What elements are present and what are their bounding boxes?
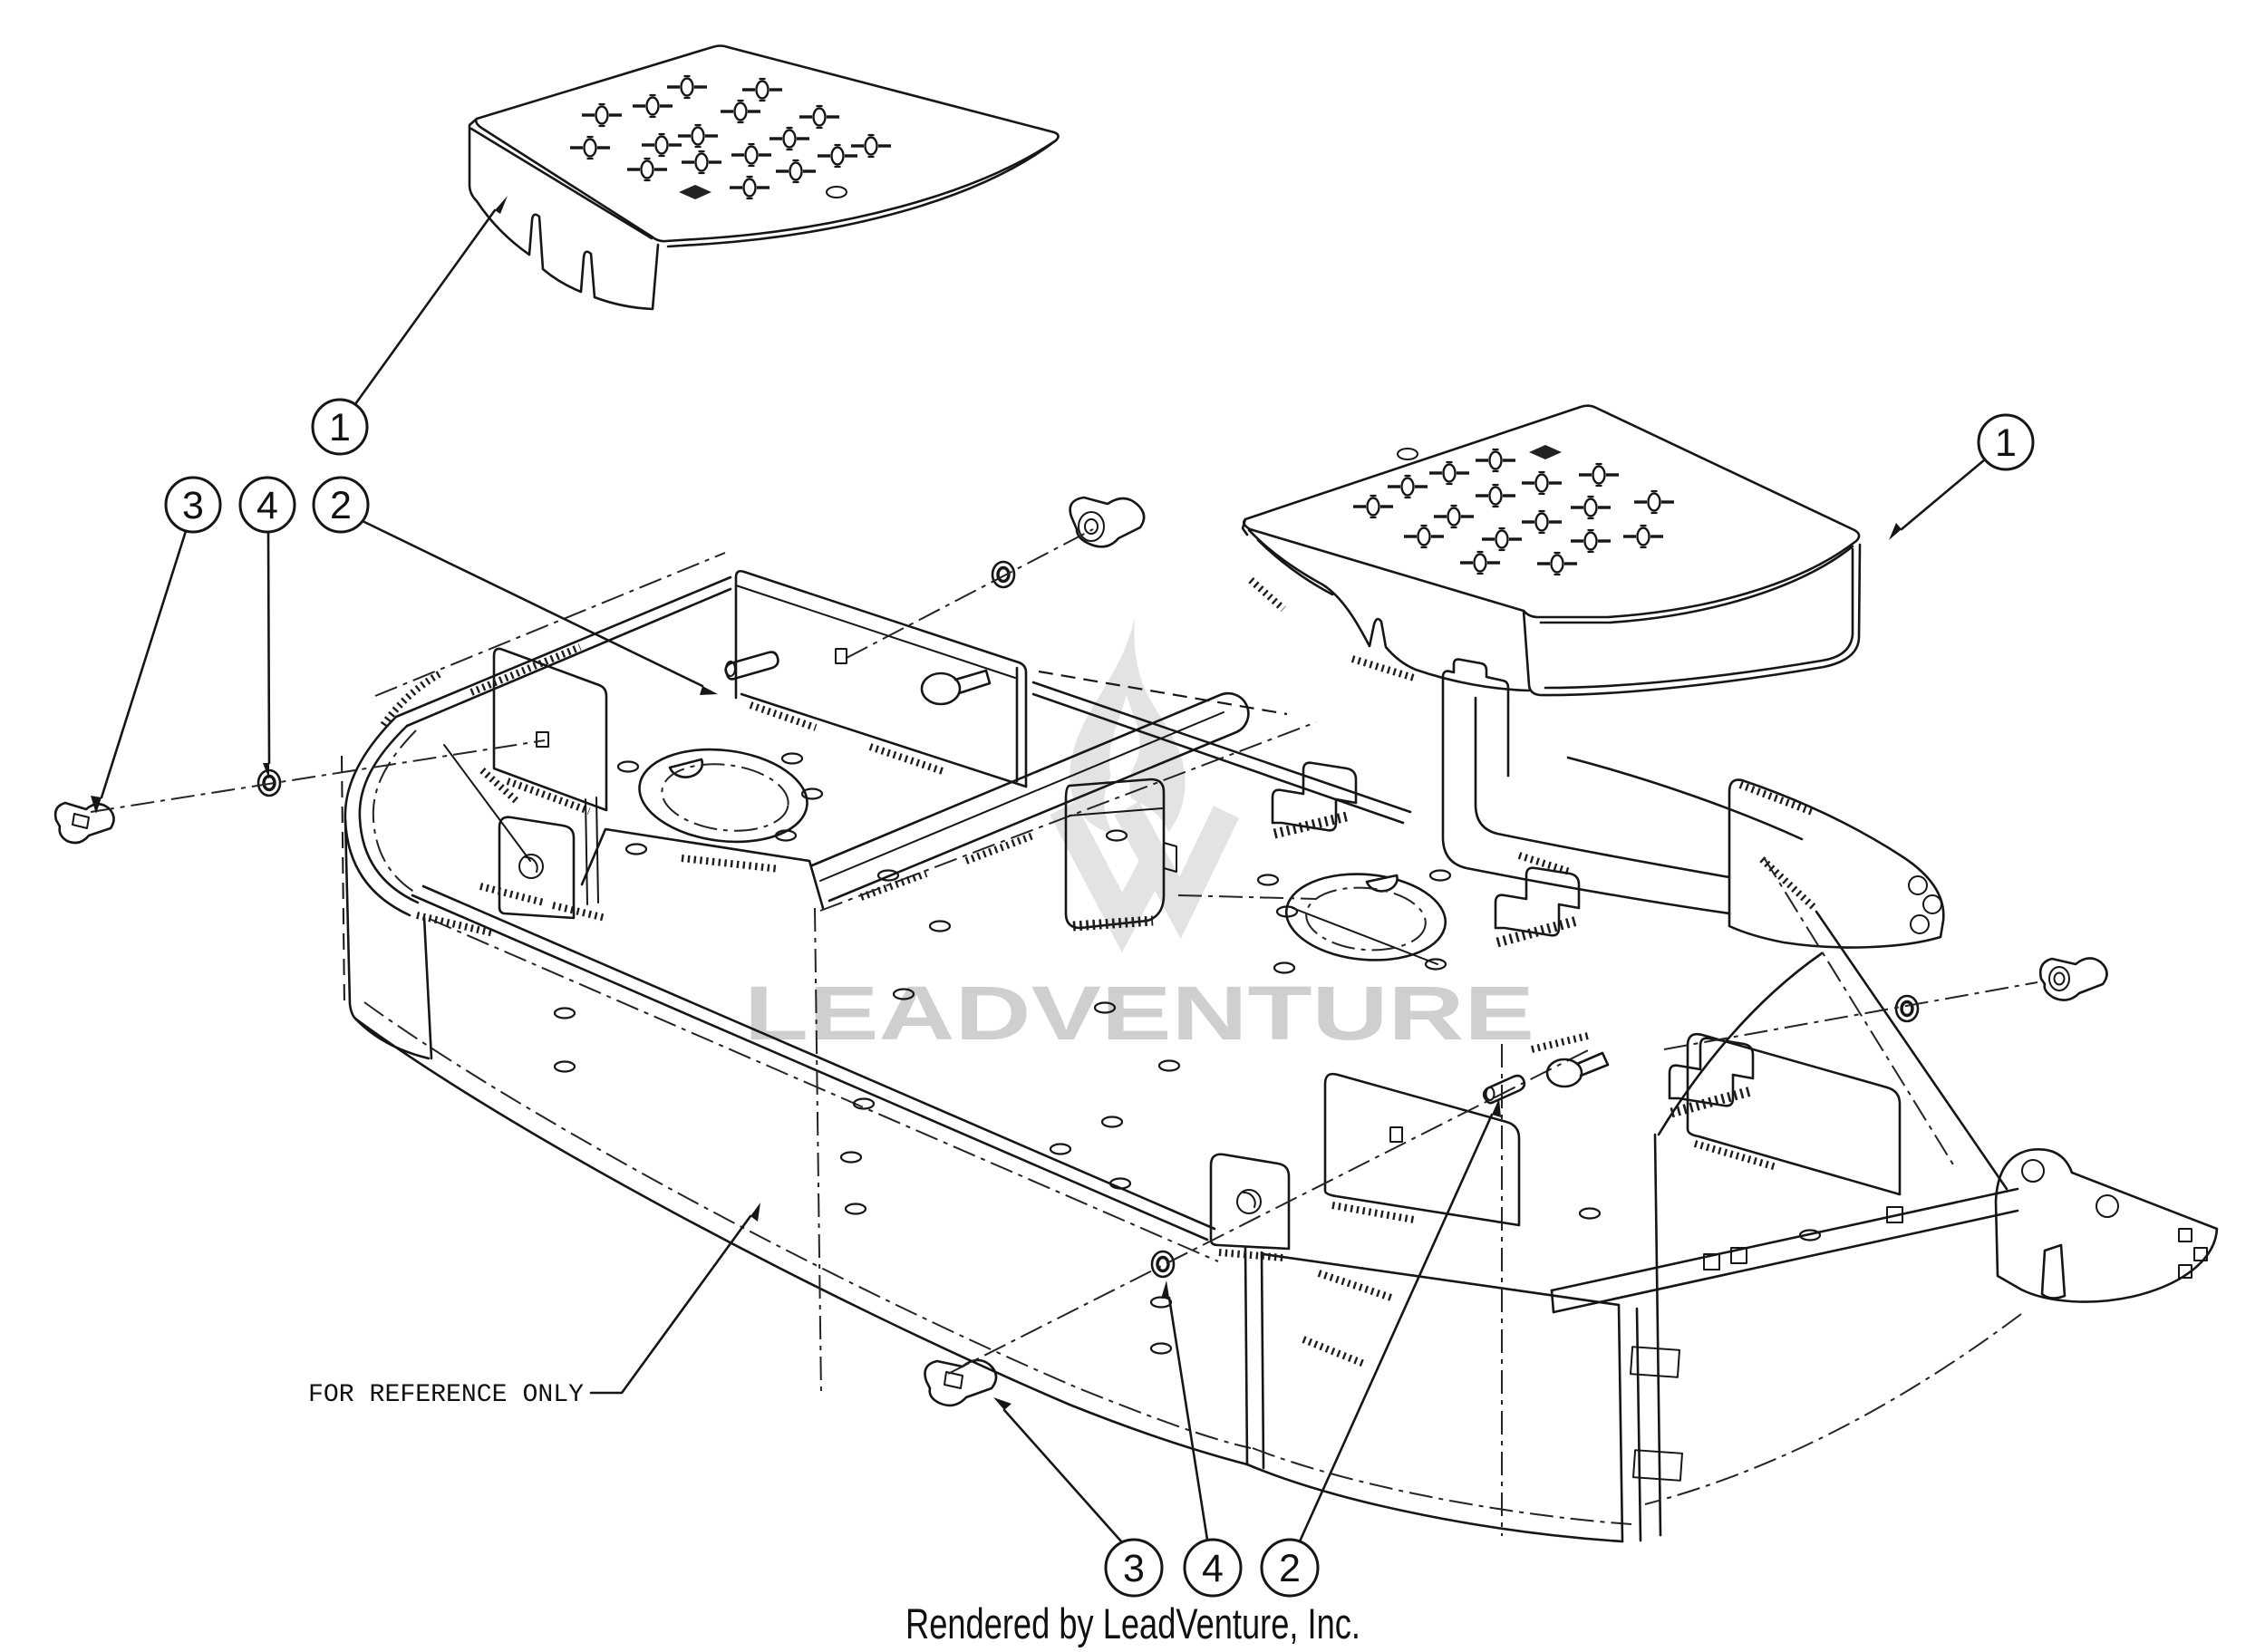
svg-text:2: 2 <box>330 484 352 527</box>
svg-text:4: 4 <box>257 484 278 527</box>
svg-text:Rendered by LeadVenture, Inc.: Rendered by LeadVenture, Inc. <box>905 1599 1360 1647</box>
svg-text:1: 1 <box>329 406 351 449</box>
svg-text:3: 3 <box>182 484 204 527</box>
svg-text:1: 1 <box>1995 421 2017 465</box>
svg-text:LEADVENTURE: LEADVENTURE <box>744 971 1534 1056</box>
svg-text:4: 4 <box>1202 1547 1224 1590</box>
svg-text:2: 2 <box>1279 1547 1301 1590</box>
svg-text:3: 3 <box>1123 1547 1145 1590</box>
svg-text:FOR REFERENCE ONLY: FOR REFERENCE ONLY <box>308 1381 584 1409</box>
